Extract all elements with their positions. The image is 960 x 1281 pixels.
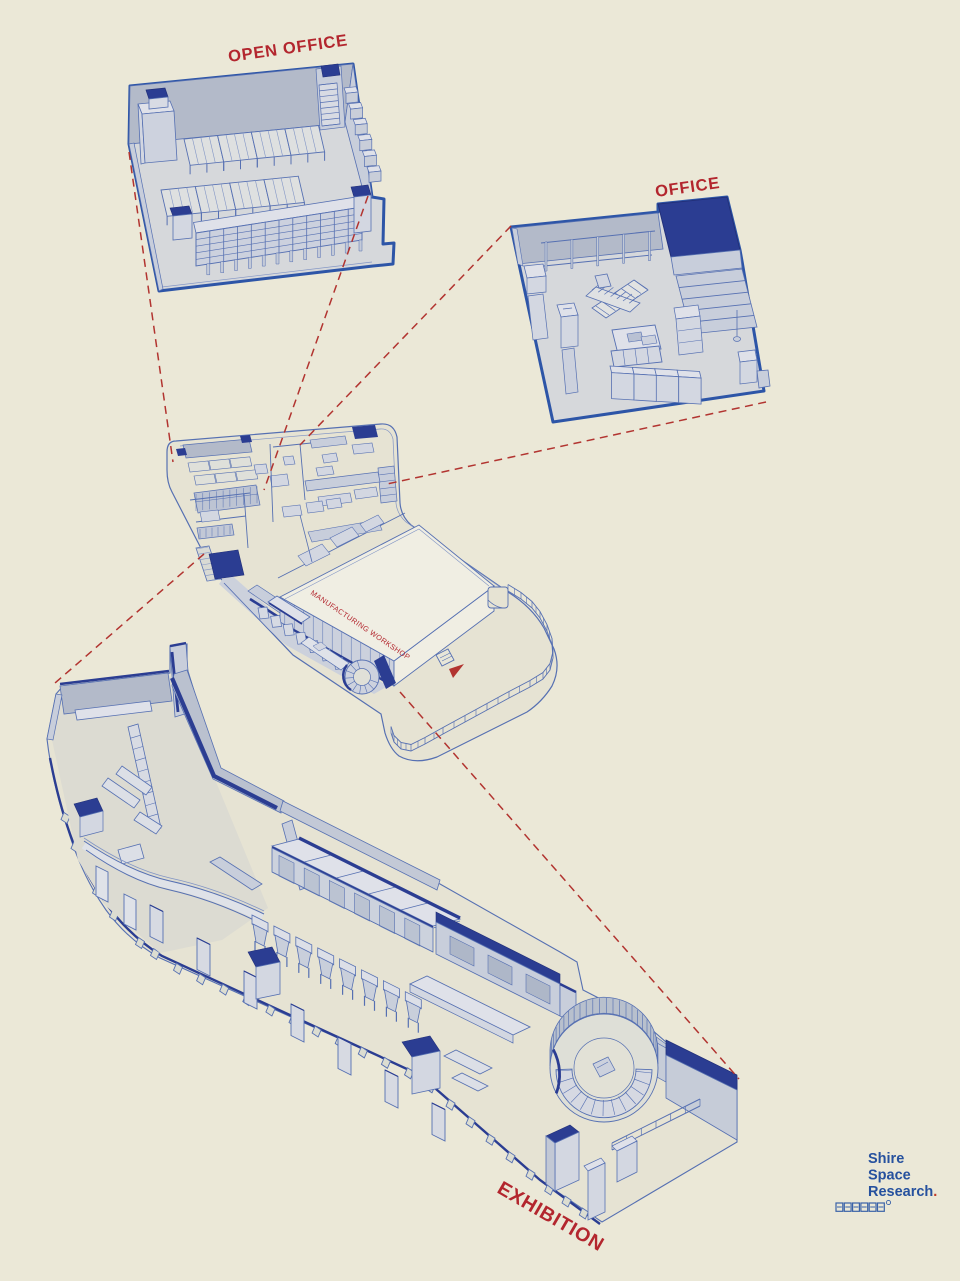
svg-text:Research.: Research. [868,1184,937,1200]
svg-text:Shire: Shire [868,1151,904,1167]
svg-text:Space: Space [868,1168,911,1184]
